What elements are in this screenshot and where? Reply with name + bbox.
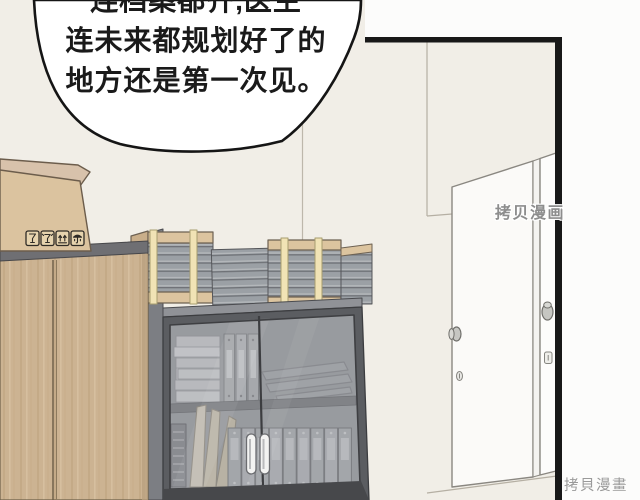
strap [190,230,197,304]
stack-far-right [341,244,372,304]
stack-left [148,230,213,304]
outer-door-knob [542,302,553,320]
strap [150,230,157,304]
stack-right [268,238,341,309]
door-latch [545,352,553,364]
wood-cabinet [0,241,148,500]
stack-middle [211,248,269,306]
comic-panel: 拷贝漫画 拷貝漫畫 连档案都齐,医生 连未来都规划好了的 地方还是第一次见。 [0,0,640,500]
strap [281,238,288,309]
speech-line: 连档案都齐,医生 [28,0,364,21]
file-cabinet [163,298,369,500]
watermark-bottom: 拷貝漫畫 [564,474,628,495]
keep-dry-icon [71,231,84,246]
speech-bubble-text: 连档案都齐,医生 连未来都规划好了的 地方还是第一次见。 [28,0,364,101]
watermark-middle: 拷贝漫画 [495,199,565,223]
this-side-up-icon [56,231,69,246]
door-knob [449,327,461,341]
door-lock [457,372,463,381]
broken-glass-icon [41,231,54,246]
fragile-icon [26,231,39,246]
speech-line: 连未来都规划好了的 [28,21,364,61]
speech-line: 地方还是第一次见。 [28,61,364,101]
strap [315,238,322,309]
